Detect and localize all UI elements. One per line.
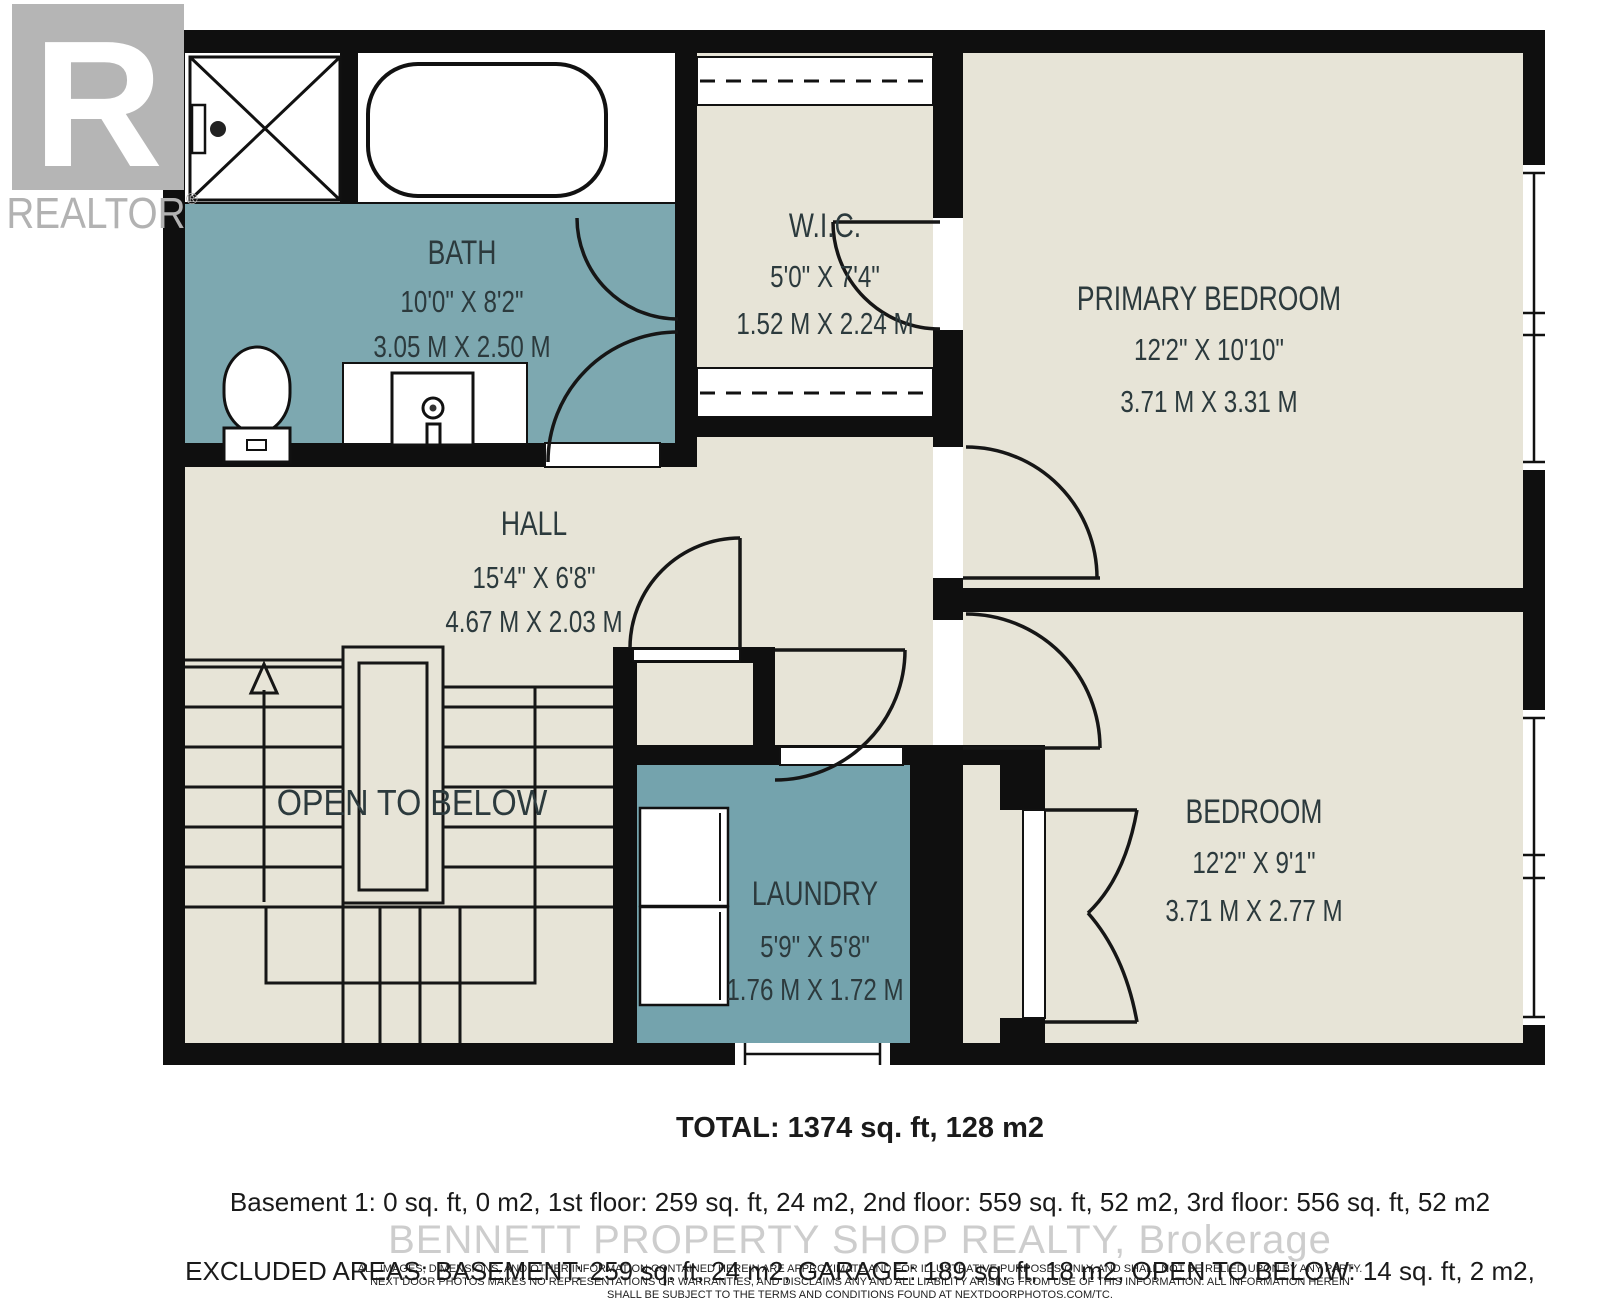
wall-exterior-top <box>163 30 1545 53</box>
wall-wic-hall <box>675 417 963 437</box>
wic-label: W.I.C. <box>789 207 861 245</box>
wall-closet-stub-top <box>1000 763 1045 810</box>
wall-laundry-right <box>910 765 933 1043</box>
realtor-logo: R REALTOR ® <box>6 4 198 238</box>
registered-trademark-icon: ® <box>186 191 198 208</box>
bathtub-icon <box>368 64 606 196</box>
excluded-areas-text: EXCLUDED AREAS: BASEMENT: 259 sq. ft, 24… <box>60 1256 1600 1287</box>
realtor-logo-r-icon: R <box>33 4 163 205</box>
bath-dim-metric: 3.05 M X 2.50 M <box>373 329 550 364</box>
bath-door-opening <box>545 443 660 467</box>
dryer-icon <box>640 907 728 1005</box>
wall-shower-tub-divider <box>340 53 358 203</box>
washer-icon <box>640 808 728 906</box>
total-area-text: TOTAL: 1374 sq. ft, 128 m2 <box>60 1112 1600 1145</box>
toilet-bowl-icon <box>224 347 290 433</box>
laundry-label: LAUNDRY <box>752 875 878 913</box>
wall-between-bedrooms <box>933 588 1523 612</box>
laundry-dim-imperial: 5'9" X 5'8" <box>760 929 870 964</box>
floorplan-canvas: BATH 10'0" X 8'2" 3.05 M X 2.50 M W.I.C.… <box>0 0 1600 1080</box>
shower-head-icon <box>210 121 226 137</box>
realtor-wordmark: REALTOR <box>6 188 185 238</box>
hall-dim-imperial: 15'4" X 6'8" <box>472 560 595 595</box>
wall-closet-stub-bottom <box>1000 1018 1045 1065</box>
bedroom-label: BEDROOM <box>1185 793 1322 831</box>
wic-door-opening <box>933 218 963 330</box>
laundry-dim-metric: 1.76 M X 1.72 M <box>726 972 903 1007</box>
primary-bedroom-label: PRIMARY BEDROOM <box>1077 280 1341 318</box>
closet-bifold-opening <box>1023 810 1045 1018</box>
wall-nook-right <box>753 663 775 745</box>
bedroom-door-opening <box>933 620 963 745</box>
wall-bath-wic <box>675 53 697 467</box>
sink-faucet-icon <box>427 424 440 445</box>
primary-bedroom-dim-metric: 3.71 M X 3.31 M <box>1120 384 1297 419</box>
disclaimer-line-3: SHALL BE SUBJECT TO THE TERMS AND CONDIT… <box>60 1289 1600 1300</box>
toilet-button-icon <box>247 440 266 450</box>
primary-door-opening <box>933 447 963 578</box>
nook-door-opening <box>633 649 740 661</box>
wall-stairs-laundry <box>613 647 637 1043</box>
bedroom-dim-imperial: 12'2" X 9'1" <box>1192 845 1315 880</box>
wic-dim-imperial: 5'0" X 7'4" <box>770 259 880 294</box>
bath-label: BATH <box>428 234 497 272</box>
bedroom-dim-metric: 3.71 M X 2.77 M <box>1165 893 1342 928</box>
wic-dim-metric: 1.52 M X 2.24 M <box>736 306 913 341</box>
sink-drain-center-icon <box>430 405 437 412</box>
hall-label: HALL <box>501 505 567 543</box>
wall-bath-hall-right <box>660 443 697 467</box>
floor-areas-text: Basement 1: 0 sq. ft, 0 m2, 1st floor: 2… <box>60 1187 1600 1218</box>
bath-dim-imperial: 10'0" X 8'2" <box>400 284 523 319</box>
hall-dim-metric: 4.67 M X 2.03 M <box>445 604 622 639</box>
primary-bedroom-dim-imperial: 12'2" X 10'10" <box>1134 332 1284 367</box>
floorplan-page: BATH 10'0" X 8'2" 3.05 M X 2.50 M W.I.C.… <box>0 0 1600 1300</box>
open-to-below-label: OPEN TO BELOW <box>277 783 548 823</box>
shower-valve-icon <box>192 105 205 153</box>
